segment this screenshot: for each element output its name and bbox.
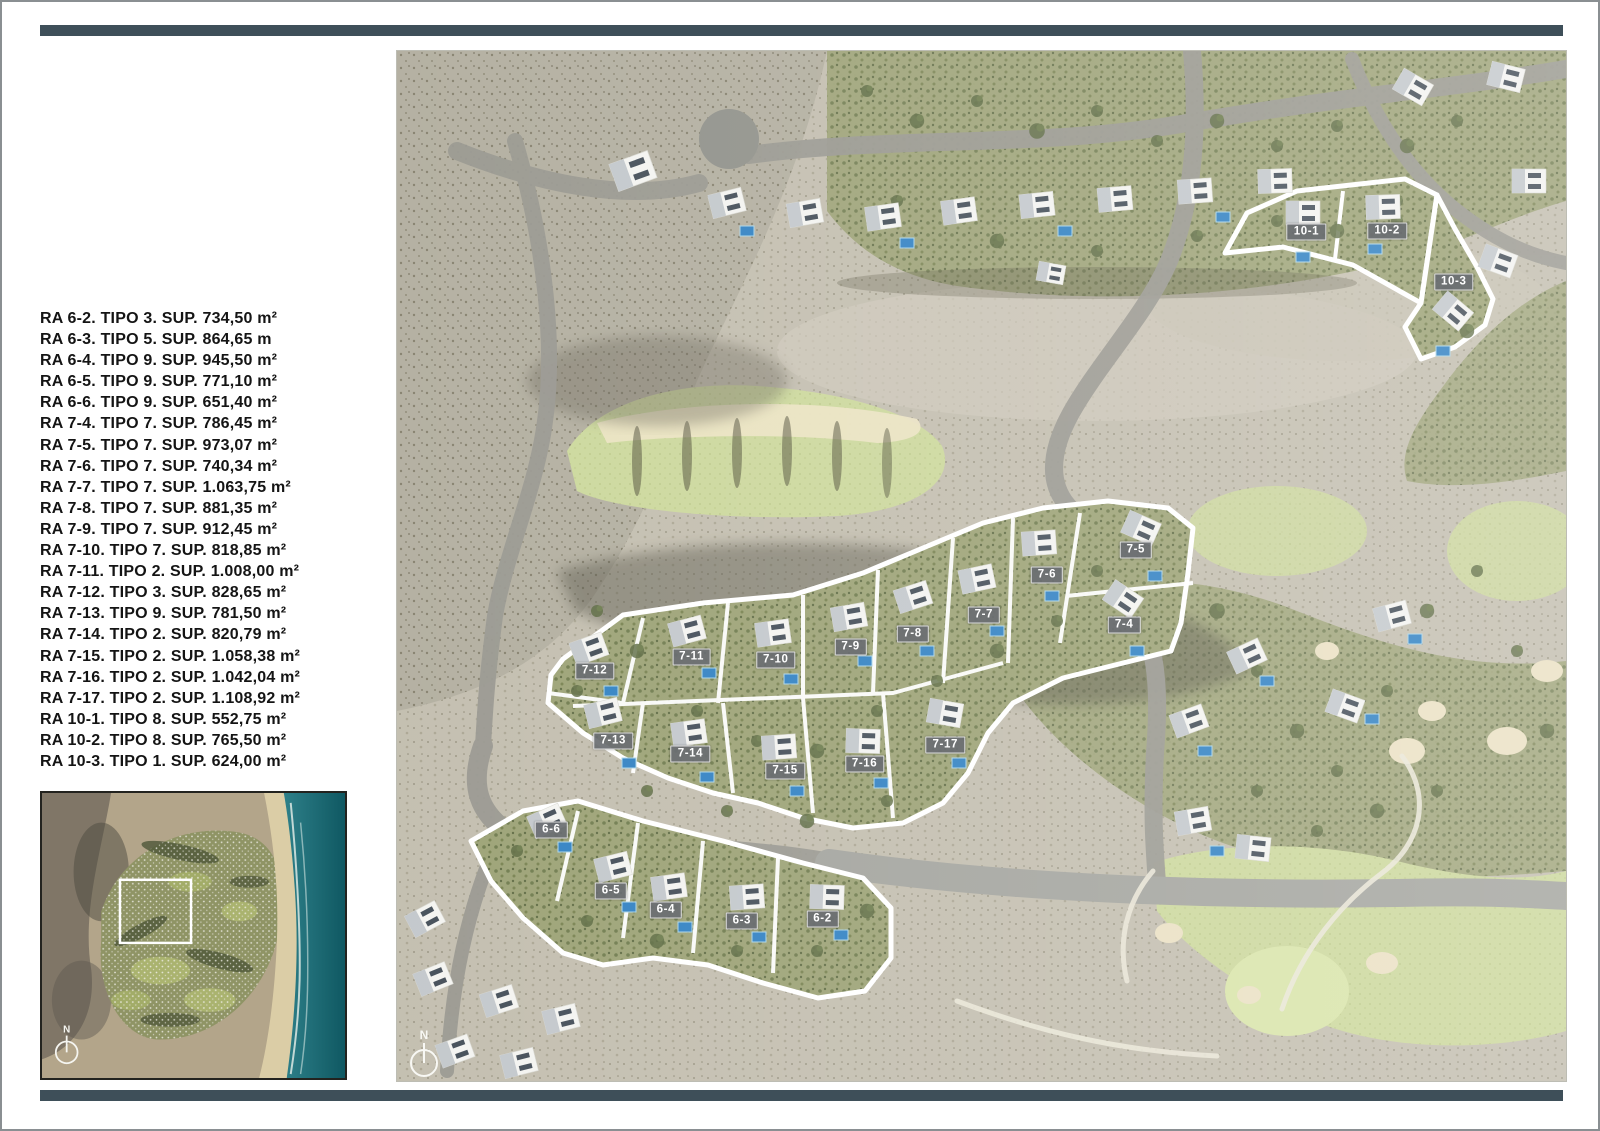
plot-label-7-6: 7-6 xyxy=(1031,567,1063,584)
plot-label-7-9: 7-9 xyxy=(834,639,866,656)
plot-label-10-1: 10-1 xyxy=(1287,224,1326,241)
legend-item: RA 10-3. TIPO 1. SUP. 624,00 m² xyxy=(40,751,380,772)
legend-item: RA 7-7. TIPO 7. SUP. 1.063,75 m² xyxy=(40,477,380,498)
plot-label-7-12: 7-12 xyxy=(575,663,614,680)
legend-item: RA 7-17. TIPO 2. SUP. 1.108,92 m² xyxy=(40,688,380,709)
legend-item: RA 7-11. TIPO 2. SUP. 1.008,00 m² xyxy=(40,561,380,582)
legend-item: RA 7-10. TIPO 7. SUP. 818,85 m² xyxy=(40,540,380,561)
legend-item: RA 7-14. TIPO 2. SUP. 820,79 m² xyxy=(40,624,380,645)
overview-north-label: N xyxy=(63,1025,70,1036)
legend-item: RA 6-5. TIPO 9. SUP. 771,10 m² xyxy=(40,371,380,392)
site-plan-map: N 7-12 7-11 7-10 7-9 7-8 7-7 7-6 7-5 7-4… xyxy=(396,50,1567,1082)
plot-label-7-8: 7-8 xyxy=(896,625,928,642)
legend-item: RA 7-8. TIPO 7. SUP. 881,35 m² xyxy=(40,498,380,519)
legend-item: RA 6-6. TIPO 9. SUP. 651,40 m² xyxy=(40,392,380,413)
legend-item: RA 10-2. TIPO 8. SUP. 765,50 m² xyxy=(40,730,380,751)
plot-label-10-3: 10-3 xyxy=(1434,273,1473,290)
plot-label-7-15: 7-15 xyxy=(765,762,804,779)
plot-label-6-2: 6-2 xyxy=(806,911,838,928)
location-overview-map: N xyxy=(40,791,347,1080)
plot-label-7-11: 7-11 xyxy=(672,648,711,665)
plot-badge-layer: 7-12 7-11 7-10 7-9 7-8 7-7 7-6 7-5 7-4 7… xyxy=(397,51,1566,1081)
legend-item: RA 6-4. TIPO 9. SUP. 945,50 m² xyxy=(40,350,380,371)
legend-item: RA 6-2. TIPO 3. SUP. 734,50 m² xyxy=(40,308,380,329)
top-accent-bar xyxy=(40,25,1563,36)
plot-label-6-6: 6-6 xyxy=(535,821,567,838)
plot-label-6-4: 6-4 xyxy=(650,902,682,919)
plan-sheet: RA 6-2. TIPO 3. SUP. 734,50 m² RA 6-3. T… xyxy=(0,0,1600,1131)
plot-label-7-7: 7-7 xyxy=(968,607,1000,624)
legend-item: RA 6-3. TIPO 5. SUP. 864,65 m xyxy=(40,329,380,350)
plot-label-6-5: 6-5 xyxy=(595,883,627,900)
plot-label-10-2: 10-2 xyxy=(1367,223,1406,240)
legend-item: RA 7-16. TIPO 2. SUP. 1.042,04 m² xyxy=(40,667,380,688)
legend-item: RA 7-9. TIPO 7. SUP. 912,45 m² xyxy=(40,519,380,540)
plot-label-7-17: 7-17 xyxy=(926,737,965,754)
legend-item: RA 7-12. TIPO 3. SUP. 828,65 m² xyxy=(40,582,380,603)
plot-label-7-10: 7-10 xyxy=(756,651,795,668)
legend-item: RA 7-4. TIPO 7. SUP. 786,45 m² xyxy=(40,413,380,434)
plot-label-7-4: 7-4 xyxy=(1108,616,1140,633)
plot-label-7-13: 7-13 xyxy=(594,733,633,750)
bottom-accent-bar xyxy=(40,1090,1563,1101)
plot-label-7-5: 7-5 xyxy=(1120,541,1152,558)
legend-item: RA 7-6. TIPO 7. SUP. 740,34 m² xyxy=(40,456,380,477)
plot-label-7-14: 7-14 xyxy=(671,746,710,763)
plot-label-7-16: 7-16 xyxy=(845,755,884,772)
legend-item: RA 7-13. TIPO 9. SUP. 781,50 m² xyxy=(40,603,380,624)
legend-item: RA 7-5. TIPO 7. SUP. 973,07 m² xyxy=(40,435,380,456)
plot-legend: RA 6-2. TIPO 3. SUP. 734,50 m² RA 6-3. T… xyxy=(40,308,380,772)
legend-item: RA 7-15. TIPO 2. SUP. 1.058,38 m² xyxy=(40,646,380,667)
legend-item: RA 10-1. TIPO 8. SUP. 552,75 m² xyxy=(40,709,380,730)
overview-illustration: N xyxy=(42,793,345,1078)
plot-label-6-3: 6-3 xyxy=(726,913,758,930)
